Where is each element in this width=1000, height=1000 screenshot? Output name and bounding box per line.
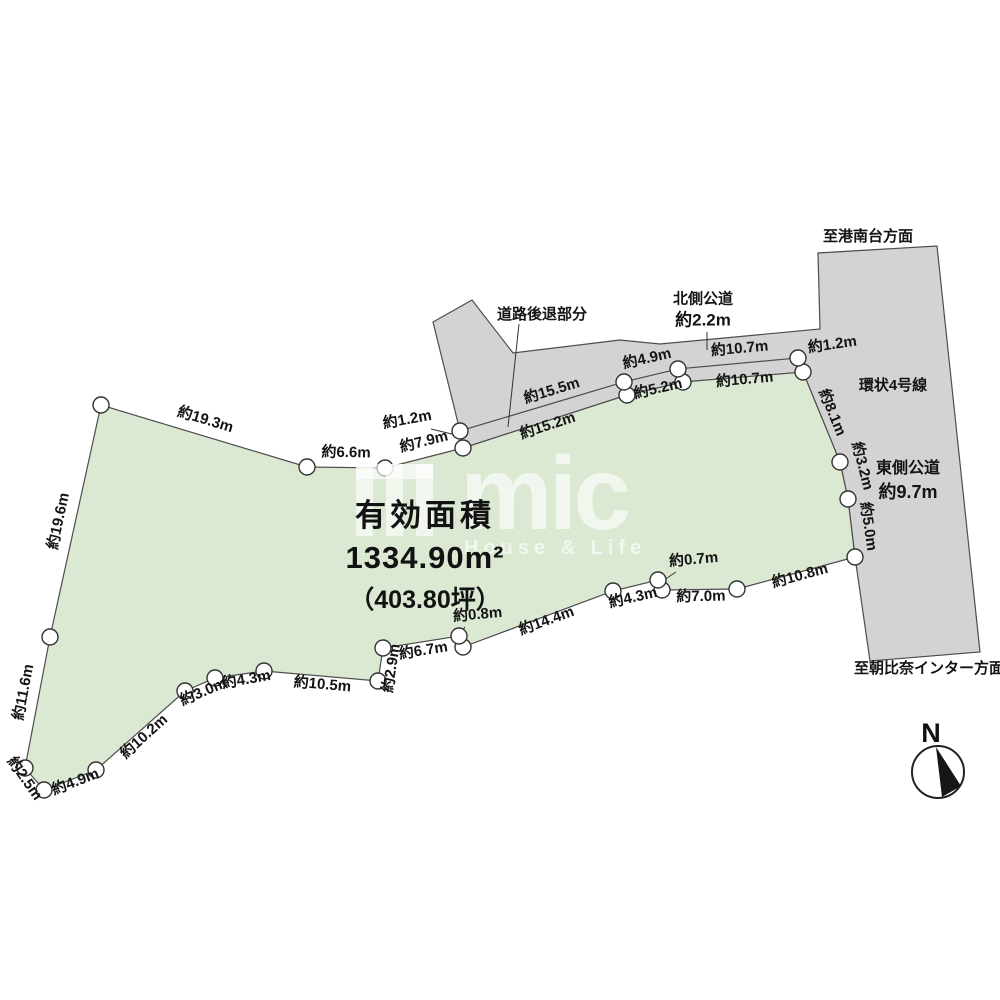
area-tsubo: （403.80坪） bbox=[346, 580, 505, 616]
dimension-label: 約1.2m bbox=[381, 406, 433, 432]
east-road-name: 東側公道 bbox=[876, 458, 940, 480]
setback-label: 道路後退部分 bbox=[497, 305, 587, 325]
north-road-label: 北側公道 約2.2m bbox=[673, 289, 733, 332]
direction-label-bottom: 至朝比奈インター方面 bbox=[854, 659, 1000, 679]
ring-road-label: 環状4号線 bbox=[859, 376, 927, 396]
dimension-label: 約7.0m bbox=[676, 587, 726, 606]
area-title: 有効面積 bbox=[346, 490, 505, 535]
dimension-label: 約11.6m bbox=[9, 662, 37, 721]
land-plot-map: 約19.3m約6.6m約7.9m約1.2m約15.5m約15.2m約4.9m約5… bbox=[0, 0, 1000, 1000]
north-road-name: 北側公道 bbox=[673, 289, 733, 309]
dimension-label: 約19.6m bbox=[43, 491, 73, 551]
north-compass: N bbox=[912, 718, 964, 798]
north-road-width: 約2.2m bbox=[673, 310, 733, 333]
dimension-label: 約6.6m bbox=[321, 443, 371, 462]
east-road-width: 約9.7m bbox=[876, 480, 940, 504]
area-block: 有効面積 1334.90m² （403.80坪） bbox=[346, 490, 505, 616]
east-road-label: 東側公道 約9.7m bbox=[876, 458, 940, 504]
area-square-meters: 1334.90m² bbox=[346, 540, 505, 576]
compass-n-label: N bbox=[921, 718, 941, 748]
dimension-label: 約7.9m bbox=[398, 426, 450, 455]
direction-label-top: 至港南台方面 bbox=[823, 227, 913, 247]
